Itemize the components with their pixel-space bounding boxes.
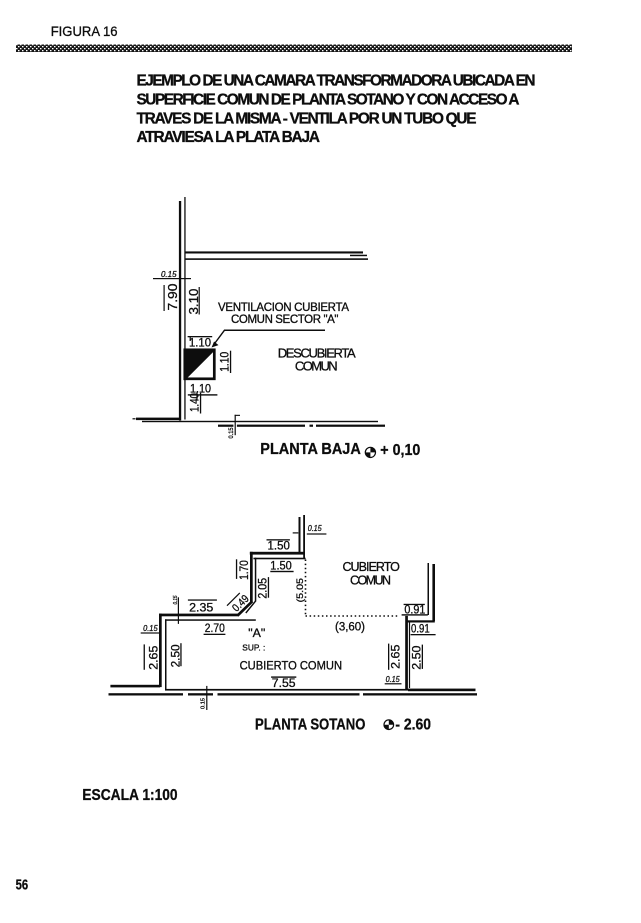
svg-text:2.65: 2.65 [389,644,403,669]
svg-text:1.50: 1.50 [270,560,292,572]
svg-text:2.50: 2.50 [168,644,182,667]
svg-text:0.15: 0.15 [308,523,322,533]
svg-text:PLANTA SOTANO: PLANTA SOTANO [255,717,365,734]
svg-text:1.10: 1.10 [220,352,232,372]
svg-text:0.15: 0.15 [386,674,400,684]
svg-text:SUPERFICIE COMUN DE PLANTA SOT: SUPERFICIE COMUN DE PLANTA SOTANO Y CON … [137,92,520,109]
svg-text:VENTILACION CUBIERTA: VENTILACION CUBIERTA [218,302,349,314]
svg-text:56: 56 [16,878,29,894]
svg-text:FIGURA 16: FIGURA 16 [51,24,118,39]
svg-text:0.15: 0.15 [200,698,206,709]
svg-text:- 2.60: - 2.60 [395,717,431,734]
svg-text:7.55: 7.55 [272,678,296,690]
svg-text:ATRAVIESA LA PLATA BAJA: ATRAVIESA LA PLATA BAJA [137,129,321,146]
svg-text:0.15: 0.15 [229,427,235,439]
svg-text:3.10: 3.10 [187,288,201,314]
svg-text:COMUN SECTOR "A": COMUN SECTOR "A" [231,314,339,326]
svg-text:COMUN: COMUN [295,359,338,374]
svg-text:CUBIERTO: CUBIERTO [343,560,401,574]
svg-text:(3,60): (3,60) [335,621,365,633]
svg-text:0.49: 0.49 [230,593,252,615]
svg-text:0.15: 0.15 [143,623,158,633]
svg-text:SUP. :: SUP. : [242,643,265,653]
svg-text:7.90: 7.90 [166,283,180,310]
svg-text:2.50: 2.50 [409,645,423,670]
svg-text:PLANTA BAJA: PLANTA BAJA [260,441,361,458]
svg-text:1.40: 1.40 [189,393,201,412]
svg-text:"A": "A" [248,628,265,640]
svg-text:(5.05: (5.05 [295,578,306,602]
svg-text:CUBIERTO COMUN: CUBIERTO COMUN [240,661,342,673]
svg-text:2.65: 2.65 [147,645,161,670]
svg-text:0.91: 0.91 [411,624,430,636]
svg-text:+ 0,10: + 0,10 [380,442,420,459]
svg-text:1.50: 1.50 [268,541,290,553]
svg-text:ESCALA 1:100: ESCALA 1:100 [82,787,177,804]
svg-text:1.70: 1.70 [239,560,251,580]
svg-text:2.70: 2.70 [205,623,225,635]
svg-text:2.05: 2.05 [258,578,270,599]
svg-text:2.35: 2.35 [189,602,213,614]
svg-text:0.15: 0.15 [161,269,177,279]
svg-text:COMUN: COMUN [350,574,391,588]
svg-text:TRAVES DE LA MISMA - VENTILA P: TRAVES DE LA MISMA - VENTILA POR UN TUBO… [137,110,477,127]
svg-text:1.10: 1.10 [189,337,211,349]
svg-text:EJEMPLO DE UNA CAMARA TRANSFOR: EJEMPLO DE UNA CAMARA TRANSFORMADORA UBI… [137,72,536,89]
